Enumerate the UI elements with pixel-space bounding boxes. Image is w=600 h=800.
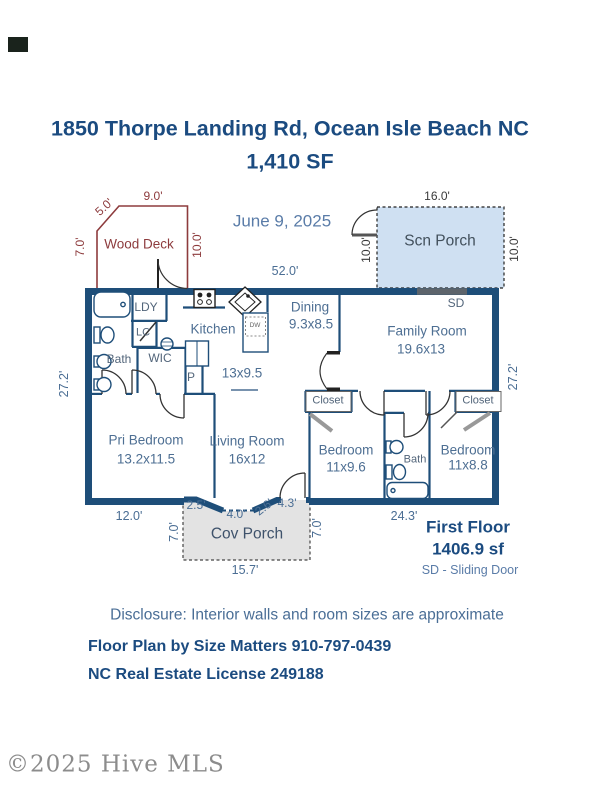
room-dim-dining: 9.3x8.5 (289, 317, 333, 331)
attribution-text: Floor Plan by Size Matters 910-797-0439 (88, 639, 391, 655)
bathtub-icon (387, 483, 428, 499)
porch-exit-door (280, 473, 305, 498)
deck-dim-right: 10.0' (191, 232, 203, 258)
room-label-family: Family Room (387, 324, 467, 338)
toilet-icon (94, 327, 100, 343)
room-label-living: Living Room (209, 434, 284, 448)
house-dim-bottom-left: 12.0' (116, 510, 143, 523)
room-label-wic: WIC (148, 352, 171, 364)
wood-deck-label: Wood Deck (104, 237, 174, 251)
kitchen-island (243, 313, 268, 352)
page-title-address: 1850 Thorpe Landing Rd, Ocean Isle Beach… (51, 118, 529, 140)
cov-porch-dim-bottom: 15.7' (232, 564, 259, 577)
closet-rod-icon (464, 413, 490, 430)
house-dim-right: 27.2' (507, 364, 520, 391)
scn-porch-label: Scn Porch (404, 233, 476, 249)
room-label-dishwasher: DW (250, 323, 261, 330)
floor-area-label: 1406.9 sf (432, 541, 504, 558)
house-dim-top: 52.0' (272, 265, 299, 278)
room-dim-bedroom-right: 11x8.8 (448, 458, 488, 472)
house-dim-bottom-right: 24.3' (391, 510, 418, 523)
pri-bedroom-door (160, 394, 184, 418)
room-dim-living: 16x12 (229, 452, 266, 466)
room-label-lc: LC (136, 328, 150, 339)
cov-porch-seg-4: 4.3' (278, 497, 297, 509)
room-label-bedroom-left: Bedroom (319, 443, 374, 457)
disclosure-text: Disclosure: Interior walls and room size… (110, 607, 504, 623)
date-label: June 9, 2025 (233, 213, 331, 230)
room-label-closet-right: Closet (462, 396, 493, 407)
room-label-kitchen: Kitchen (190, 322, 235, 336)
closet-rod-icon (310, 414, 332, 431)
scn-porch-dim-right: 10.0' (508, 236, 520, 262)
closet-right-door (441, 412, 457, 428)
hall-bath-door (404, 413, 428, 437)
cov-porch-label: Cov Porch (211, 526, 283, 542)
floor-name-label: First Floor (426, 519, 510, 536)
cov-porch-seg-2: 4.0' (227, 508, 246, 520)
page-title-size: 1,410 SF (246, 151, 333, 173)
room-label-bath-hall: Bath (404, 455, 427, 466)
sliding-door-legend: SD - Sliding Door (422, 564, 519, 577)
cov-porch-dim-left: 7.0' (168, 522, 181, 542)
license-text: NC Real Estate License 249188 (88, 667, 324, 683)
room-label-closet-left: Closet (312, 396, 343, 407)
bedroom-left-door (360, 391, 384, 415)
room-label-bath-primary: Bath (107, 353, 132, 365)
room-dim-bedroom-left: 11x9.6 (326, 460, 366, 474)
room-label-bedroom-right: Bedroom (441, 443, 496, 457)
wic-door (132, 370, 156, 394)
scn-porch-dim-left: 10.0' (360, 237, 372, 263)
room-label-dining: Dining (291, 300, 329, 314)
room-dim-pri-bedroom: 13.2x11.5 (117, 452, 175, 466)
floor-plan-page: 1850 Thorpe Landing Rd, Ocean Isle Beach… (0, 0, 600, 800)
water-heater-icon (161, 338, 173, 350)
room-label-pantry: P (187, 371, 195, 383)
family-double-door (320, 353, 327, 389)
deck-dim-left: 7.0' (74, 238, 86, 257)
room-dim-family: 19.6x13 (397, 342, 445, 356)
room-dim-kitchen: 13x9.5 (222, 366, 263, 380)
deck-dim-top: 9.0' (144, 190, 163, 202)
sliding-door (417, 288, 467, 295)
toilet-icon (386, 465, 392, 479)
room-label-ldy: LDY (134, 301, 157, 313)
house-dim-left: 27.2' (58, 371, 71, 398)
stove-icon (194, 290, 215, 308)
cov-porch-seg-1: 2.5' (187, 499, 206, 511)
scn-porch-dim-top: 16.0' (424, 190, 450, 202)
room-label-pri-bedroom: Pri Bedroom (108, 433, 183, 447)
sliding-door-label: SD (448, 297, 465, 309)
hall-bath-fixtures (386, 441, 428, 499)
watermark: ©2025 Hive MLS (6, 754, 225, 777)
cov-porch-dim-right: 7.0' (311, 518, 324, 538)
